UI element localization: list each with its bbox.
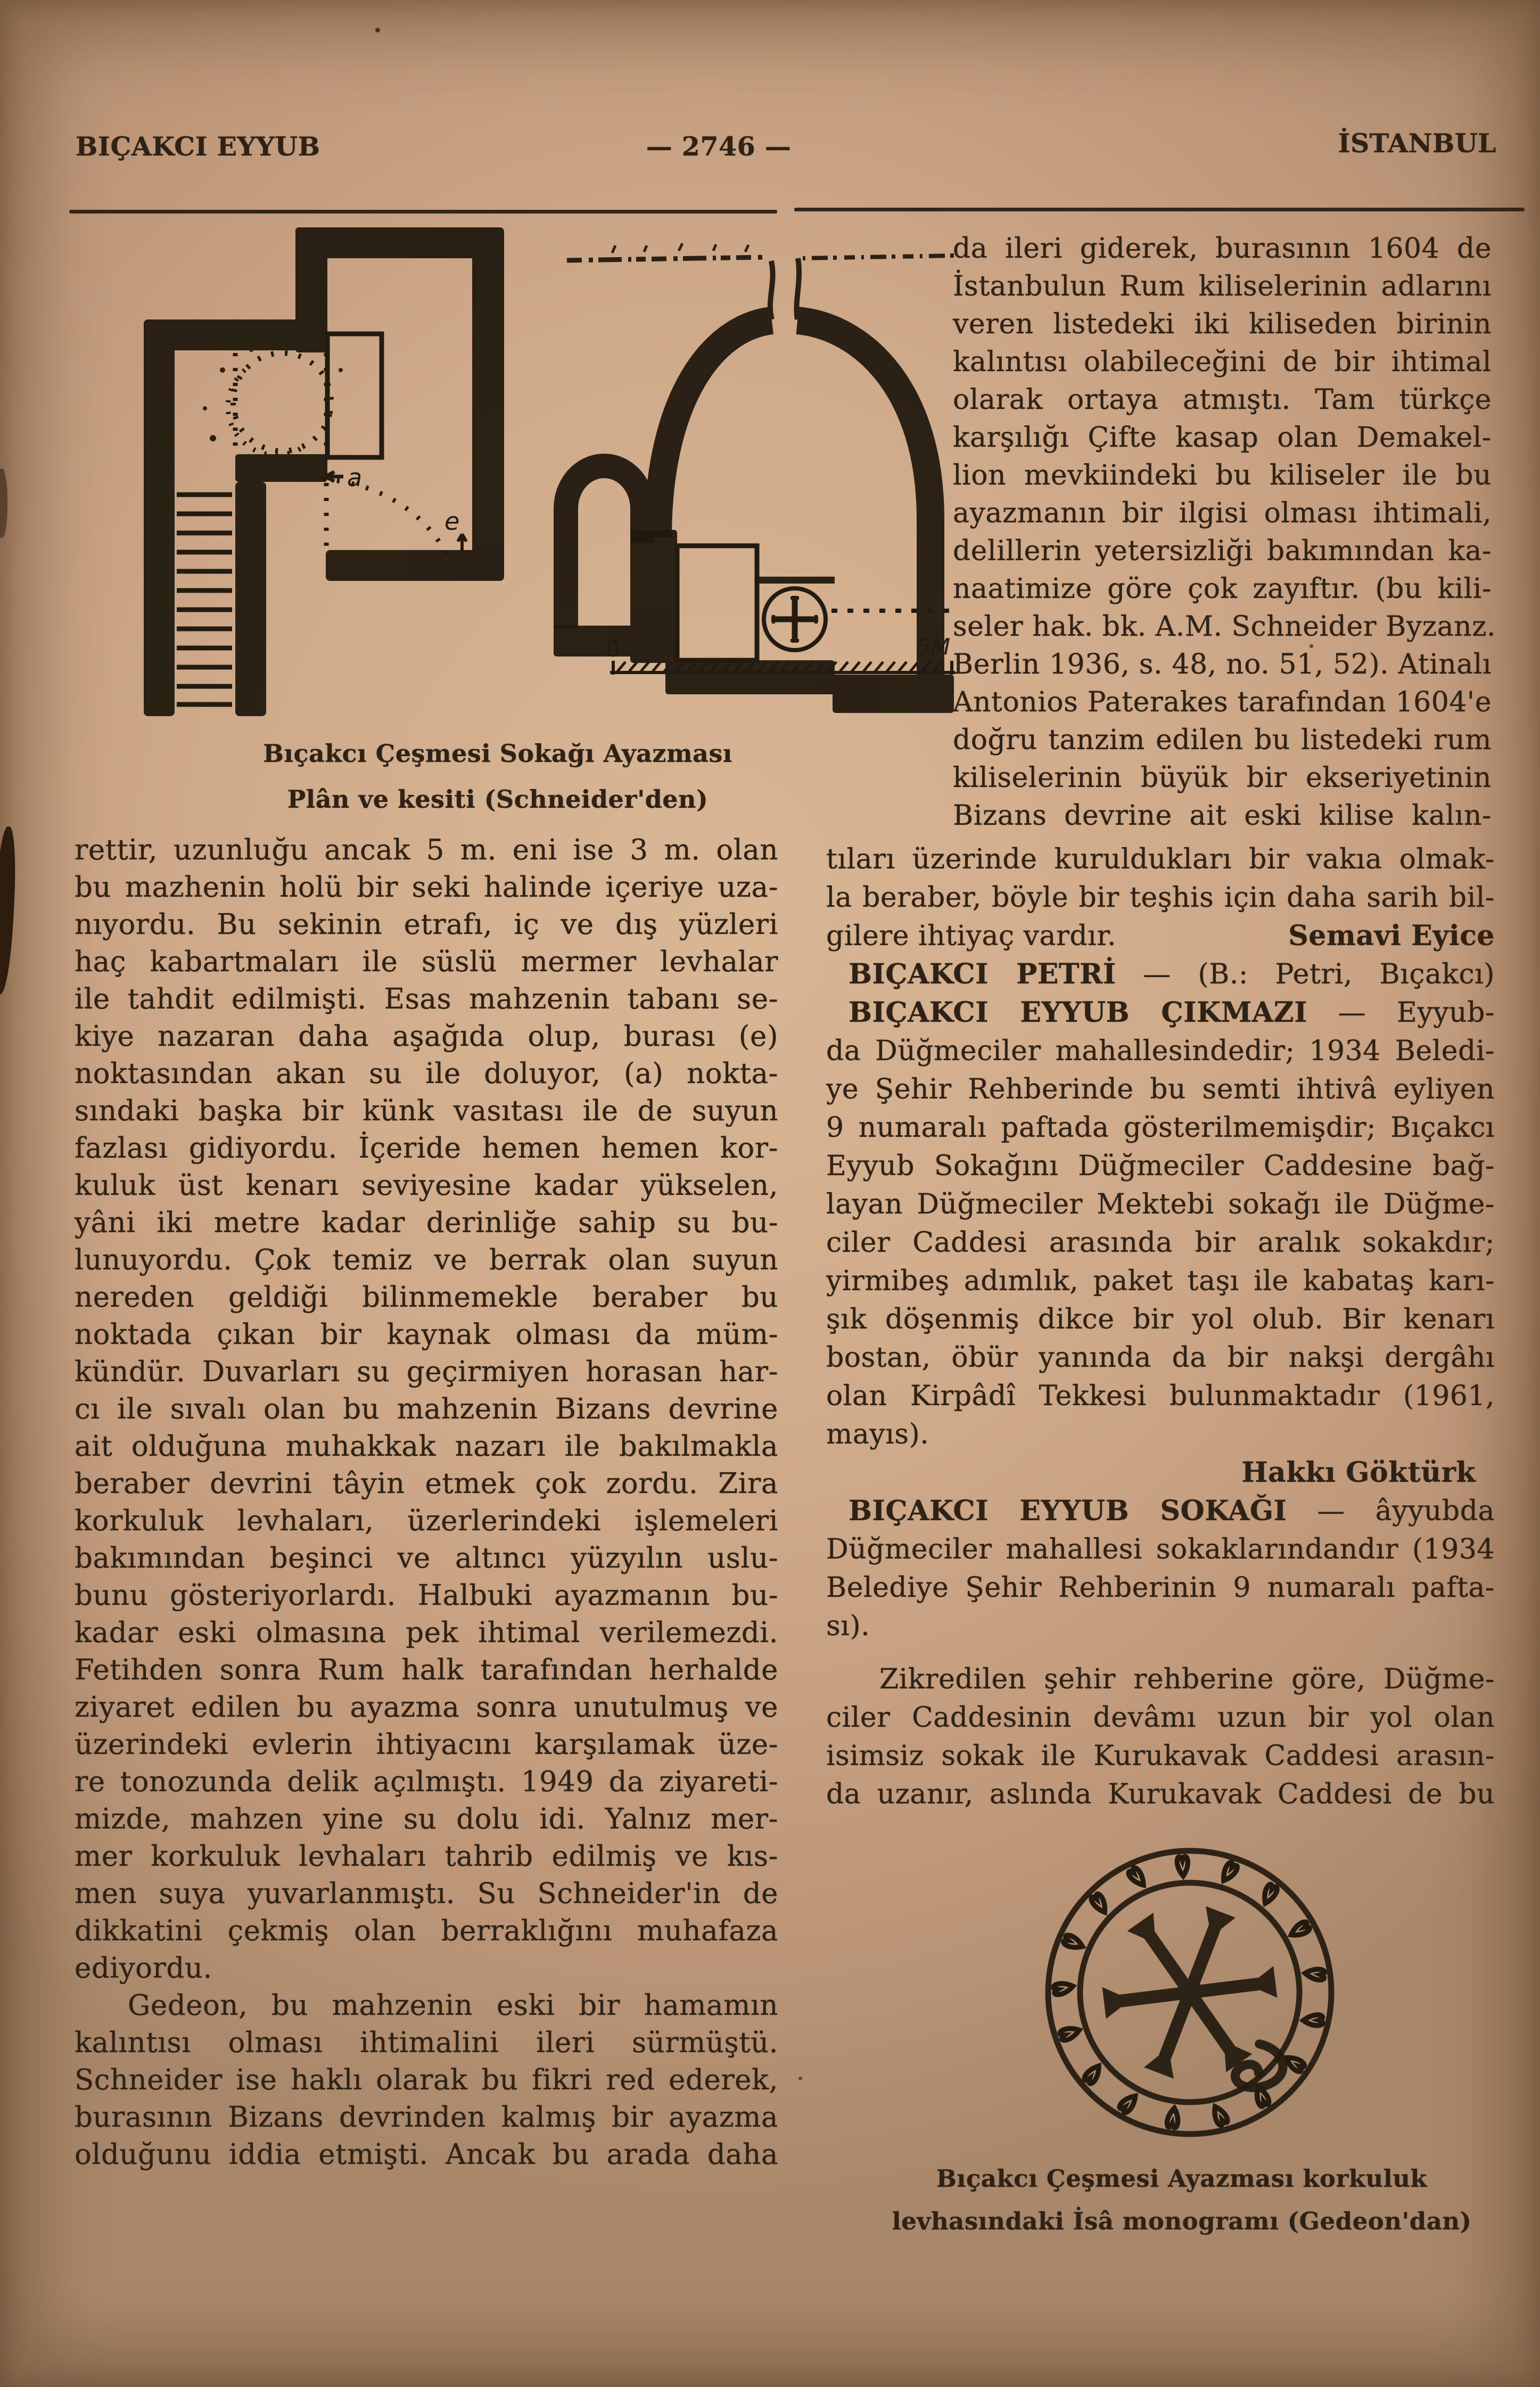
scale-end-label: 5M xyxy=(917,634,950,660)
text-line: noktasından akan su ile doluyor, (a) nok… xyxy=(75,1055,778,1093)
section-platform xyxy=(677,546,757,660)
monogram-caption-line1: Bıçakcı Çeşmesi Ayazması korkuluk xyxy=(828,2158,1536,2200)
text-line: ye Şehir Rehberinde bu semti ihtivâ eyli… xyxy=(826,1070,1495,1109)
header-entry-title: BIÇAKCI EYYUB xyxy=(76,131,320,162)
text-line: olarak ortaya atmıştı. Tam türkçe xyxy=(953,381,1492,419)
text-line: nıyordu. Bu sekinin etrafı, iç ve dış yü… xyxy=(75,906,778,944)
ivy-leaf-ornament xyxy=(1305,1968,1325,1980)
scan-edge-blob xyxy=(0,826,18,994)
text-line: seler hak. bk. A.M. Schneider Byzanz. xyxy=(953,608,1492,646)
plan-caption-line1: Bıçakcı Çeşmesi Sokağı Ayazması xyxy=(90,731,905,776)
header-volume-title: İSTANBUL xyxy=(1338,128,1497,159)
monogram-figure-caption: Bıçakcı Çeşmesi Ayazması korkuluk levhas… xyxy=(828,2158,1536,2243)
scan-edge-blob-small xyxy=(0,469,7,538)
text-line: ile tahdit edilmişti. Esas mahzenin taba… xyxy=(75,981,778,1018)
text-line: ciler Caddesinin devâmı uzun bir yol ola… xyxy=(826,1699,1495,1737)
text-line: İstanbulun Rum kiliselerinin adlarını xyxy=(953,268,1492,306)
entry-heading-line: BIÇAKCI EYYUB ÇIKMAZI — Eyyub- xyxy=(826,994,1495,1032)
text-line: ziyaret edilen bu ayazma sonra unutulmuş… xyxy=(75,1689,778,1726)
text-line: karşılığı Çifte kasap olan Demakel- xyxy=(953,419,1492,457)
text-line: la beraber, böyle bir teşhis için daha s… xyxy=(826,879,1495,917)
text-line: sındaki başka bir künk vasıtası ile de s… xyxy=(75,1093,778,1130)
text-line: mizde, mahzen yine su dolu idi. Yalnız m… xyxy=(75,1801,778,1838)
text-line: Bizans devrine ait eski kilise kalın- xyxy=(953,797,1492,835)
text-line: kiliselerinin büyük bir ekseriyetinin xyxy=(953,759,1492,797)
plan-seki-platform xyxy=(327,334,382,457)
text-line: olan Kirpâdî Tekkesi bulunmaktadır (1961… xyxy=(826,1377,1495,1415)
entry-term: BIÇAKCI EYYUB SOKAĞI xyxy=(849,1495,1287,1527)
text-line: Eyyub Sokağını Düğmeciler Caddesine bağ- xyxy=(826,1147,1495,1185)
text-line: ediyordu. xyxy=(75,1950,778,1987)
paper-speck xyxy=(798,2077,802,2080)
entry-term: BIÇAKCI EYYUB ÇIKMAZI xyxy=(849,996,1307,1029)
text-line: Gedeon, bu mahzenin eski bir hamamın xyxy=(75,1987,778,2024)
text-line: layan Düğmeciler Mektebi sokağı ile Düğm… xyxy=(826,1185,1495,1224)
text-line: Antonios Paterakes tarafından 1604'e xyxy=(953,684,1492,721)
text-line: veren listedeki iki kiliseden birinin xyxy=(953,306,1492,343)
text-line: lion mevkiindeki bu kiliseler ile bu xyxy=(953,457,1492,495)
text-line: kalıntısı olabileceğini de bir ihtimal xyxy=(953,343,1492,381)
paper-speck xyxy=(375,28,380,32)
text-line: yirmibeş adımlık, paket taşı ile kabataş… xyxy=(826,1262,1495,1300)
text-line: şık döşenmiş dikce bir yol olub. Bir ken… xyxy=(826,1300,1495,1339)
text-line: kuluk üst kenarı seviyesine kadar yüksel… xyxy=(75,1167,778,1204)
text-line: delillerin yetersizliği bakımından ka- xyxy=(953,532,1492,570)
text-line: Schneider ise haklı olarak bu fikri red … xyxy=(75,2062,778,2099)
text-line: Zikredilen şehir rehberine göre, Düğme- xyxy=(826,1660,1495,1699)
ivy-leaf-ornament xyxy=(1261,1883,1279,1905)
text-line: bostan, öbür yanında da bir nakşi dergâh… xyxy=(826,1339,1495,1377)
signature-line: gilere ihtiyaç vardır.Semavi Eyice xyxy=(826,917,1495,955)
text-line: beraber devrini tâyin etmek çok zordu. Z… xyxy=(75,1465,778,1503)
text-line: re tonozunda delik açılmıştı. 1949 da zi… xyxy=(75,1763,778,1801)
text-line: üzerindeki evlerin ihtiyacını karşılamak… xyxy=(75,1726,778,1763)
plan-label-a: a xyxy=(347,463,362,492)
page-number: — 2746 — xyxy=(479,131,958,162)
text-line: kalıntısı olması ihtimalini ileri sürmüş… xyxy=(75,2024,778,2062)
entry-heading-line: BIÇAKCI PETRİ — (B.: Petri, Bıçakcı) xyxy=(826,955,1495,994)
text-line: tıları üzerinde kuruldukları bir vakıa o… xyxy=(826,840,1495,879)
text-line: doğru tanzim edilen bu listedeki rum xyxy=(953,721,1492,759)
entry-definition-lead: — âyyubda xyxy=(1287,1495,1495,1527)
right-column-flow: tıları üzerinde kuruldukları bir vakıa o… xyxy=(826,840,1495,1814)
scanned-encyclopedia-page: { "header": { "left": "BIÇAKCI EYYUB", "… xyxy=(0,0,1540,2387)
text-line: burasının Bizans devrinden kalmış bir ay… xyxy=(75,2099,778,2136)
text-line: rettir, uzunluğu ancak 5 m. eni ise 3 m.… xyxy=(75,832,778,869)
text-line: ayazmanın bir ilgisi olması ihtimali, xyxy=(953,495,1492,532)
plan-labels: a e xyxy=(326,463,466,554)
entry-heading-line: BIÇAKCI EYYUB SOKAĞI — âyyubda xyxy=(826,1492,1495,1530)
text-line: korkuluk levhaları, üzerlerindeki işleme… xyxy=(75,1503,778,1540)
text-line: Berlin 1936, s. 48, no. 51, 52). Atinalı xyxy=(953,646,1492,684)
text-line: nereden geldiği bilinmemekle beraber bu xyxy=(75,1279,778,1316)
entry-definition-lead: — Eyyub- xyxy=(1307,997,1495,1029)
text-line: dikkatini çekmiş olan berraklığını muhaf… xyxy=(75,1913,778,1950)
text-line: ciler Caddesi arasında bir aralık sokakd… xyxy=(826,1224,1495,1262)
text-line: da uzanır, aslında Kurukavak Caddesi de … xyxy=(826,1775,1495,1814)
text-line: Düğmeciler mahallesi sokaklarındandır (1… xyxy=(826,1530,1495,1569)
text-line: ait olduğuna muhakkak nazarı ile bakılma… xyxy=(75,1428,778,1465)
text-line: 9 numaralı paftada gösterilmemişdir; Bıç… xyxy=(826,1109,1495,1147)
chi-rho-monogram-drawing xyxy=(1003,1821,1376,2172)
text-line: yâni iki metre kadar derinliğe sahip su … xyxy=(75,1204,778,1242)
plan-figure-caption: Bıçakcı Çeşmesi Sokağı Ayazması Plân ve … xyxy=(90,731,905,822)
left-column: rettir, uzunluğu ancak 5 m. eni ise 3 m.… xyxy=(75,832,778,2173)
text-line: mayıs). xyxy=(826,1415,1495,1454)
text-line: kündür. Duvarları su geçirmiyen horasan … xyxy=(75,1354,778,1391)
text-line: bu mazhenin holü bir seki halinde içeriy… xyxy=(75,869,778,906)
ivy-leaf-ornament xyxy=(1177,1856,1189,1876)
right-column-beside-figure: da ileri giderek, burasının 1604 deİstan… xyxy=(953,230,1492,835)
page-header: BIÇAKCI EYYUB — 2746 — İSTANBUL xyxy=(0,131,1540,168)
text-line: isimsiz sokak ile Kurukavak Caddesi aras… xyxy=(826,1737,1495,1775)
ivy-leaf-ornament xyxy=(1289,1921,1311,1939)
text-line: kadar eski olmasına pek ihtimal verileme… xyxy=(75,1614,778,1652)
ivy-leaf-ornament xyxy=(1090,1893,1109,1915)
plan-label-e: e xyxy=(444,507,459,536)
ivy-leaf-ornament xyxy=(1220,1861,1239,1883)
text-line: cı ile sıvalı olan bu mahzenin Bizans de… xyxy=(75,1391,778,1428)
monogram-cross xyxy=(1094,1899,1288,2104)
author-line: Hakkı Göktürk xyxy=(826,1454,1495,1492)
ivy-leaf-ornament xyxy=(1063,1934,1084,1951)
text-line: haç kabartmaları ile süslü mermer levhal… xyxy=(75,944,778,981)
plan-staircase xyxy=(177,495,232,704)
author-name: Semavi Eyice xyxy=(1288,917,1495,955)
text-line: Belediye Şehir Rehberinin 9 numaralı paf… xyxy=(826,1569,1495,1607)
text-line: olduğunu iddia etmişti. Ancak bu arada d… xyxy=(75,2136,778,2173)
text-line: da Düğmeciler mahallesindedir; 1934 Bele… xyxy=(826,1032,1495,1070)
entry-definition-lead: — (B.: Petri, Bıçakcı) xyxy=(1116,958,1495,990)
section-masonry xyxy=(554,530,954,713)
text-line: naatimize göre çok zayıftır. (bu kili- xyxy=(953,570,1492,608)
text-line: bakımından beşinci ve altıncı yüzyılın u… xyxy=(75,1540,778,1577)
signature-text: gilere ihtiyaç vardır. xyxy=(826,917,1116,955)
ivy-leaf-ornament xyxy=(1166,2107,1180,2128)
text-line: men suya yuvarlanmıştı. Su Schneider'in … xyxy=(75,1875,778,1913)
ivy-leaf-ornament xyxy=(1303,2015,1323,2026)
monogram-figure xyxy=(1003,1821,1376,2172)
text-line: lunuyordu. Çok temiz ve berrak olan suyu… xyxy=(75,1242,778,1279)
ivy-leaf-ornament xyxy=(1083,2063,1103,2085)
plan-figure: a e 0 5M xyxy=(53,210,958,724)
section-cross-medallion xyxy=(764,588,826,650)
text-line: bunu gösteriyorlardı. Halbuki ayazmanın … xyxy=(75,1577,778,1614)
monogram-caption-line2: levhasındaki İsâ monogramı (Gedeon'dan) xyxy=(828,2200,1536,2243)
text-line: Fetihden sonra Rum halk tarafından herha… xyxy=(75,1652,778,1689)
scale-zero-label: 0 xyxy=(606,636,620,662)
text-line: fazlası gidiyordu. İçeride hemen hemen k… xyxy=(75,1130,778,1167)
ivy-leaf-ornament xyxy=(1118,2093,1139,2114)
text-line: noktada çıkan bir kaynak olması da müm- xyxy=(75,1316,778,1354)
ivy-leaf-ornament xyxy=(1210,2104,1229,2126)
plan-and-section-drawing: a e 0 5M xyxy=(53,210,958,724)
text-line: mer korkuluk levhaları tahrib edilmiş ve… xyxy=(75,1838,778,1875)
entry-term: BIÇAKCI PETRİ xyxy=(849,958,1116,990)
text-line: sı). xyxy=(826,1607,1495,1645)
text-line: da ileri giderek, burasının 1604 de xyxy=(953,230,1492,268)
ivy-leaf-ornament xyxy=(1059,2025,1081,2041)
ivy-leaf-ornament xyxy=(1127,1867,1148,1889)
plan-caption-line2: Plân ve kesiti (Schneider'den) xyxy=(90,776,905,822)
text-line: kiye nazaran daha aşağıda olup, burası (… xyxy=(75,1018,778,1055)
ivy-leaf-ornament xyxy=(1053,1981,1074,1996)
